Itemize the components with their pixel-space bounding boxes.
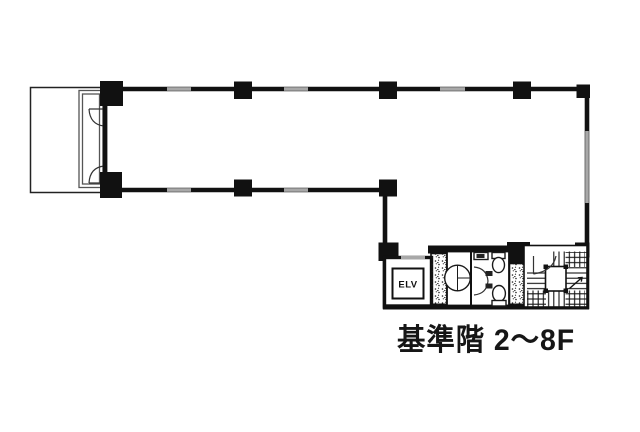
window-segment: [440, 87, 465, 91]
window-bay-inner: [83, 94, 100, 184]
stair-void: [546, 267, 567, 292]
column: [234, 82, 252, 100]
toilet: [493, 286, 506, 302]
column: [379, 180, 397, 197]
window-segment: [167, 188, 191, 192]
elevator-door: [401, 256, 425, 259]
balcony-outline: [31, 88, 107, 193]
stair-treads: [527, 272, 546, 307]
pipe-shaft: [510, 264, 525, 306]
stair-treads: [566, 252, 587, 307]
fixture-box: [486, 271, 493, 276]
window-segment: [167, 87, 191, 91]
floor-caption: 基準階 2～8F: [397, 323, 575, 357]
post: [544, 265, 549, 270]
shaft-hatch: [510, 264, 525, 306]
toilet-area: [445, 252, 509, 307]
toilet-tank: [492, 301, 506, 307]
post: [564, 265, 569, 270]
door-swing-arc: [89, 109, 104, 126]
floor-plan-drawing: ELV: [0, 0, 640, 432]
sink-basin: [477, 254, 485, 258]
balcony: [31, 88, 107, 193]
column: [577, 85, 591, 99]
window-segments: [167, 87, 589, 203]
fixture-box: [486, 284, 493, 289]
column: [379, 82, 397, 100]
staircase: [524, 246, 587, 308]
window-segment: [585, 131, 589, 203]
elevator-label: ELV: [398, 280, 417, 291]
window-segment: [284, 87, 308, 91]
floor-plan-page: ELV: [0, 0, 640, 432]
elevator-room: ELV: [385, 256, 432, 306]
column: [100, 172, 122, 198]
columns: [100, 81, 590, 263]
post: [544, 289, 549, 294]
column: [513, 82, 531, 100]
window-segment: [284, 188, 308, 192]
column: [234, 180, 252, 197]
post: [564, 289, 569, 294]
toilet: [493, 257, 505, 272]
column: [100, 81, 123, 106]
